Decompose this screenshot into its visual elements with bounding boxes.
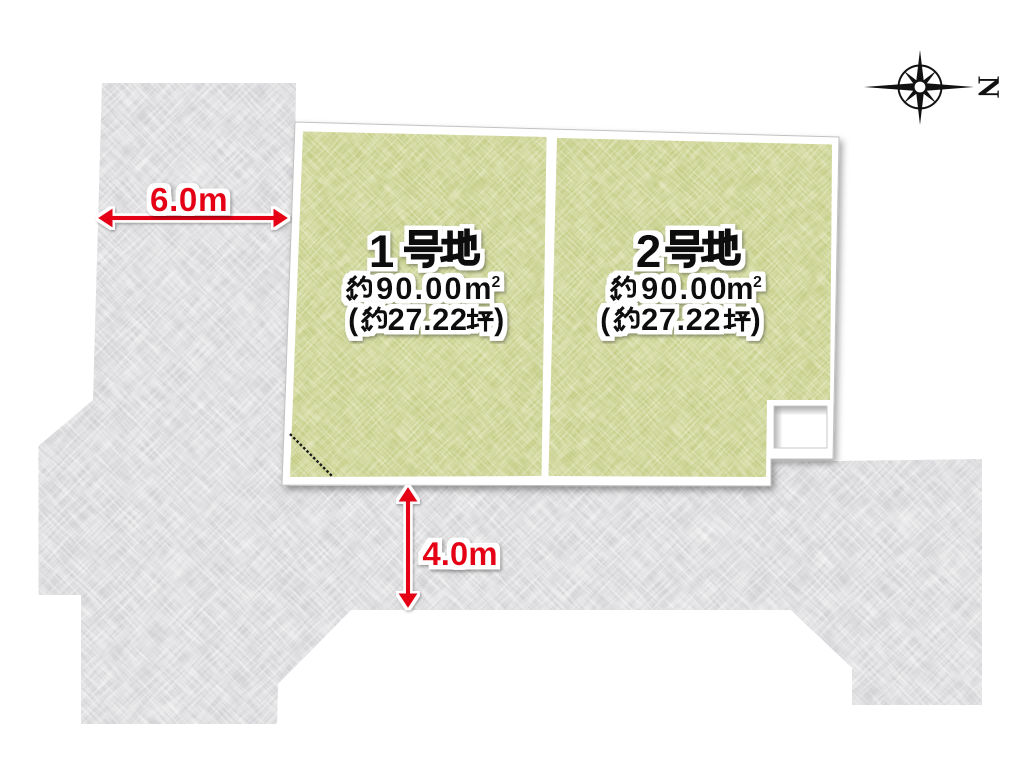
svg-text:2: 2 — [636, 225, 662, 277]
svg-text:2: 2 — [753, 274, 762, 291]
svg-text:N: N — [972, 76, 1007, 98]
svg-text:27.22: 27.22 — [388, 302, 468, 337]
svg-text:1: 1 — [369, 225, 395, 277]
svg-text:6.0m: 6.0m — [150, 182, 228, 219]
svg-text:2: 2 — [492, 274, 501, 291]
svg-text:90.00: 90.00 — [376, 271, 464, 306]
svg-text:): ) — [494, 302, 504, 337]
svg-text:(: ( — [348, 302, 359, 337]
svg-text:): ) — [751, 302, 761, 337]
svg-text:m: m — [726, 271, 754, 306]
svg-text:m: m — [464, 271, 492, 306]
svg-text:4.0m: 4.0m — [422, 535, 497, 572]
svg-text:90.00: 90.00 — [641, 271, 729, 306]
svg-text:27.22: 27.22 — [641, 302, 721, 337]
svg-text:(: ( — [600, 302, 611, 337]
